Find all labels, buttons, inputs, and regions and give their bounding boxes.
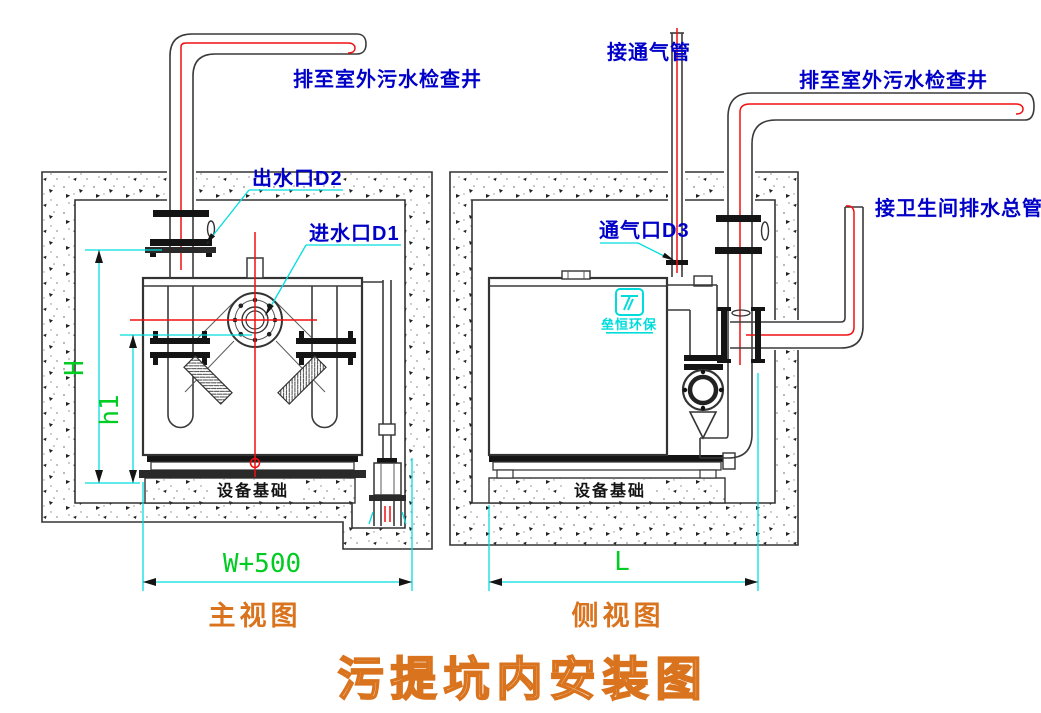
front-foundation-pad: 设备基础 [145, 478, 355, 503]
dimension-H: H [60, 360, 90, 376]
side-tank-skid [489, 453, 735, 478]
side-view-caption: 侧视图 [572, 601, 665, 631]
company-logo-text: 垒恒环保 [601, 317, 657, 332]
installation-drawing-page: 设备基础 [0, 0, 1041, 713]
side-toilet-main-label: 接卫生间排水总管 [875, 196, 1041, 220]
side-vent-port-label: 通气口D3 [599, 218, 690, 242]
front-foundation-label: 设备基础 [217, 481, 289, 500]
front-outlet-label: 出水口D2 [252, 167, 343, 190]
side-foundation-pad: 设备基础 [489, 478, 725, 503]
side-tank-body [489, 271, 667, 455]
front-inlet-label: 进水口D1 [309, 222, 400, 245]
side-view: 设备基础 垒恒环保 [450, 28, 1041, 631]
side-vent-pipe-label: 接通气管 [607, 40, 691, 64]
side-discharge-label: 排至室外污水检查井 [799, 68, 988, 92]
drawing-title: 污提坑内安装图 [338, 653, 709, 705]
side-vent-pipe [666, 28, 712, 286]
side-annotations: 接通气管 排至室外污水检查井 通气口D3 接卫生间排水总管 [599, 40, 1041, 261]
front-discharge-label: 排至室外污水检查井 [293, 67, 482, 91]
front-submersible-pump [362, 280, 406, 526]
front-view: 设备基础 [42, 34, 482, 631]
installation-diagram-canvas: 设备基础 [0, 0, 1041, 713]
side-foundation-label: 设备基础 [574, 481, 646, 500]
dimension-W500: W+500 [223, 549, 301, 579]
side-discharge-pipe [715, 93, 1034, 434]
dimension-L: L [614, 547, 630, 577]
side-tank-lid-handle [562, 271, 590, 279]
dimension-h1: h1 [95, 394, 125, 425]
front-view-caption: 主视图 [209, 601, 302, 631]
